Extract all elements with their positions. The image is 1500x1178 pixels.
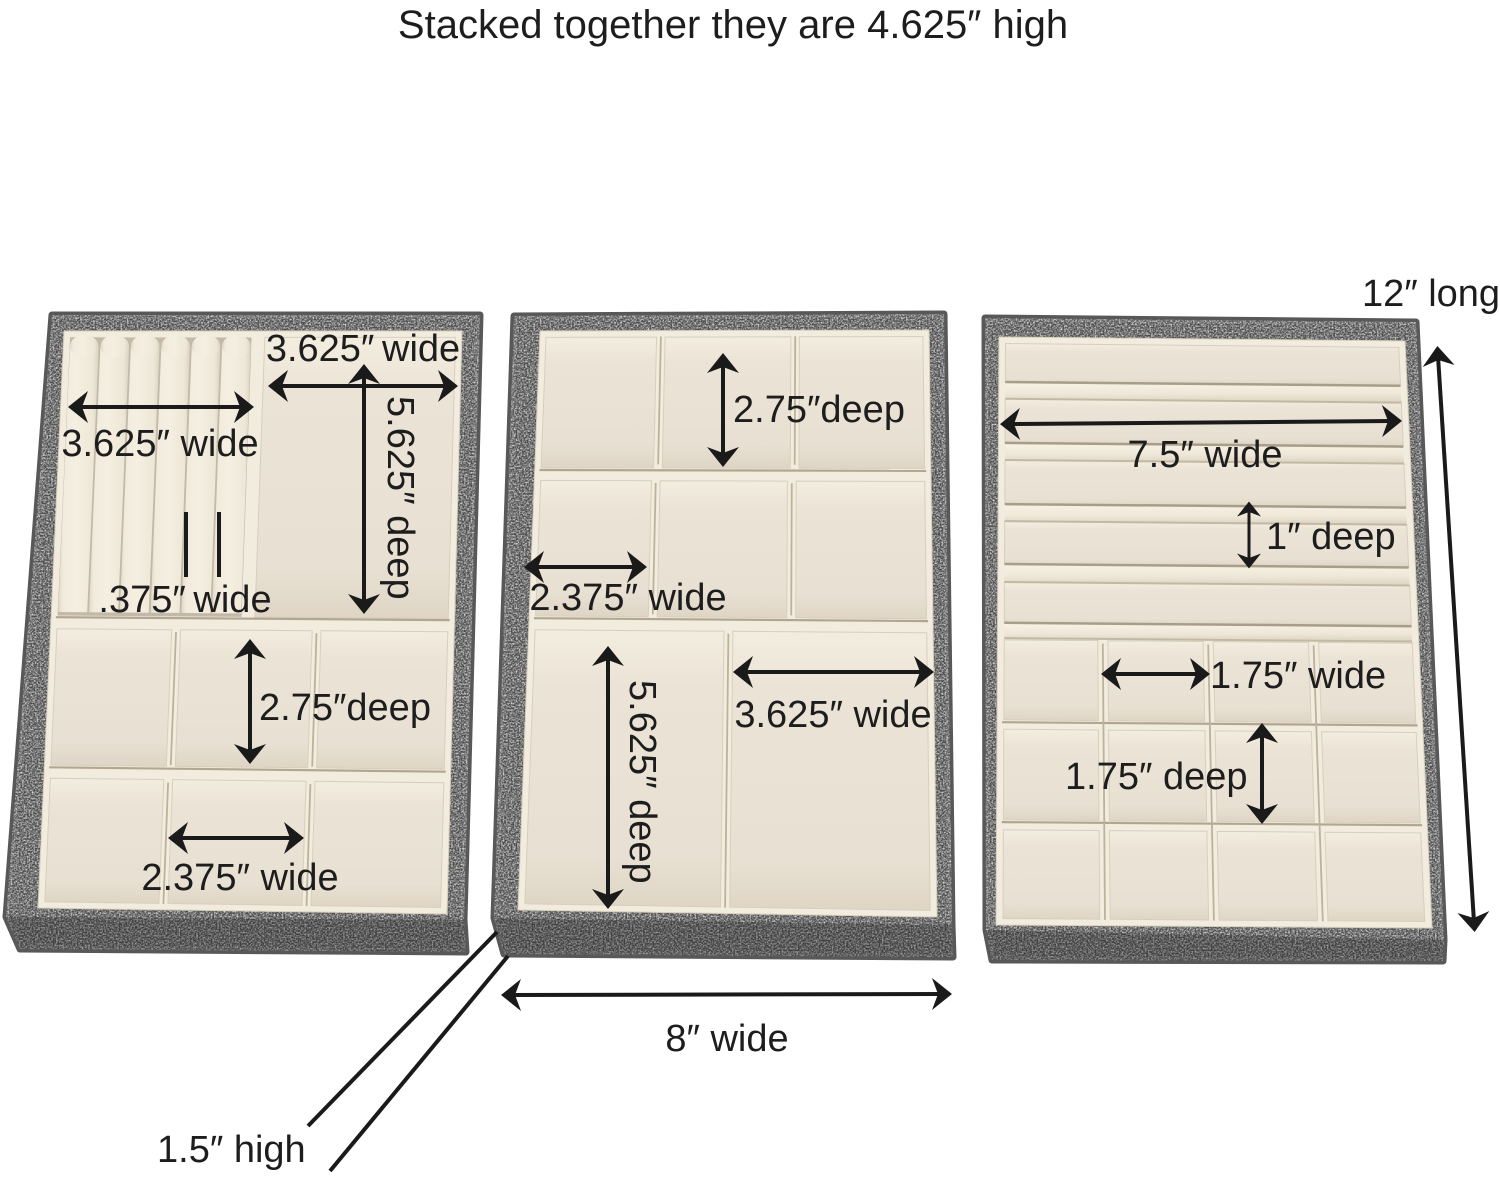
svg-text:1″ deep: 1″ deep	[1266, 516, 1396, 558]
svg-text:1.75″ deep: 1.75″ deep	[1065, 756, 1248, 798]
svg-text:1.75″ wide: 1.75″ wide	[1210, 655, 1386, 697]
svg-text:3.625″ wide: 3.625″ wide	[61, 423, 258, 465]
svg-text:8″ wide: 8″ wide	[665, 1018, 788, 1060]
svg-text:3.625″ wide: 3.625″ wide	[266, 328, 460, 370]
svg-text:Stacked together they are 4.62: Stacked together they are 4.625″ high	[398, 3, 1068, 47]
svg-text:3.625″ wide: 3.625″ wide	[734, 694, 931, 736]
svg-text:2.75″deep: 2.75″deep	[733, 389, 905, 431]
svg-text:12″ long: 12″ long	[1362, 273, 1500, 315]
svg-text:2.75″deep: 2.75″deep	[259, 687, 431, 729]
svg-text:7.5″ wide: 7.5″ wide	[1128, 434, 1283, 476]
svg-text:5.625″ deep: 5.625″ deep	[621, 680, 663, 884]
svg-text:5.625″ deep: 5.625″ deep	[379, 396, 421, 600]
svg-text:1.5″ high: 1.5″ high	[157, 1129, 306, 1171]
svg-text:2.375″ wide: 2.375″ wide	[529, 577, 726, 619]
svg-text:.375″ wide: .375″ wide	[98, 579, 271, 621]
svg-text:2.375″ wide: 2.375″ wide	[141, 857, 338, 899]
